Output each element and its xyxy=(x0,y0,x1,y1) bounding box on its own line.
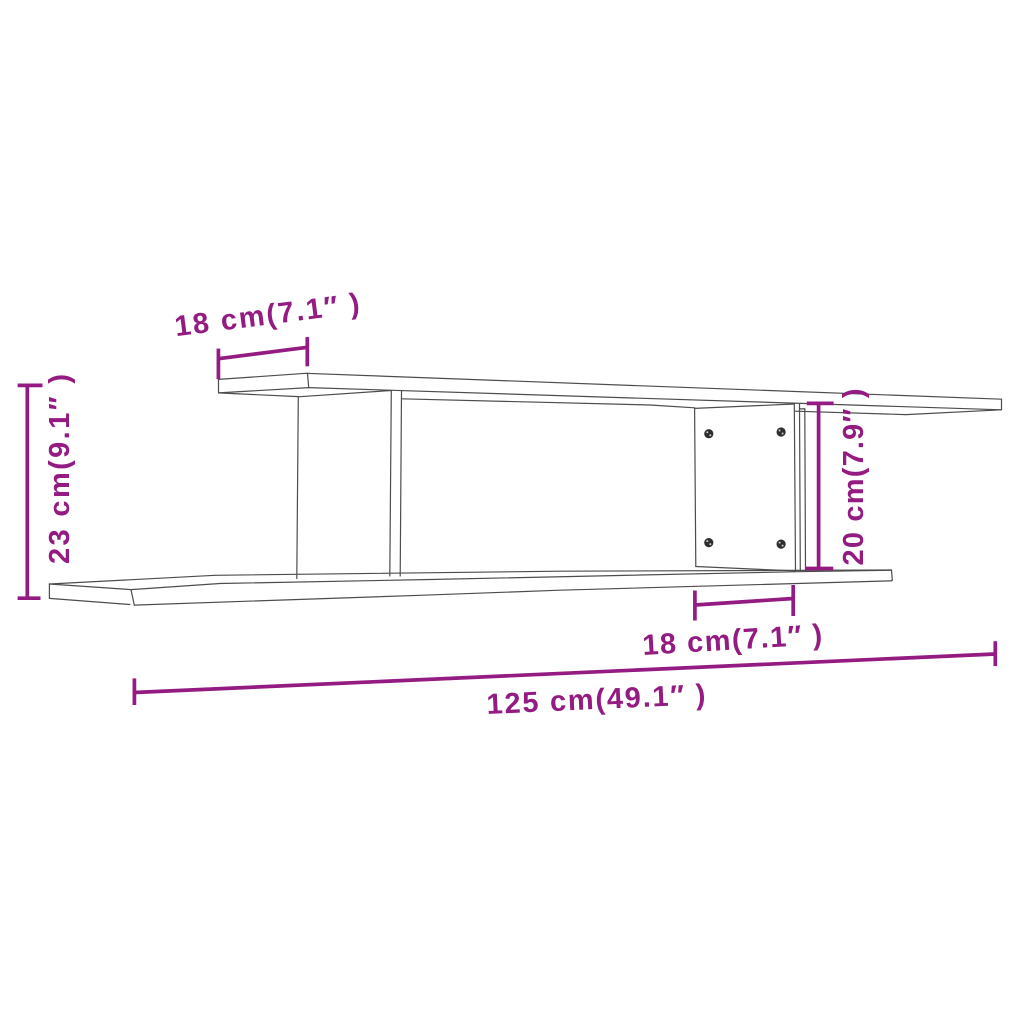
svg-text:18 cm(7.1″ ): 18 cm(7.1″ ) xyxy=(641,619,823,662)
svg-text:23 cm(9.1″ ): 23 cm(9.1″ ) xyxy=(44,374,76,564)
svg-text:125 cm(49.1″ ): 125 cm(49.1″ ) xyxy=(486,679,706,721)
svg-text:18 cm(7.1″ ): 18 cm(7.1″ ) xyxy=(173,288,362,343)
svg-text:20 cm(7.9″ ): 20 cm(7.9″ ) xyxy=(838,389,870,566)
